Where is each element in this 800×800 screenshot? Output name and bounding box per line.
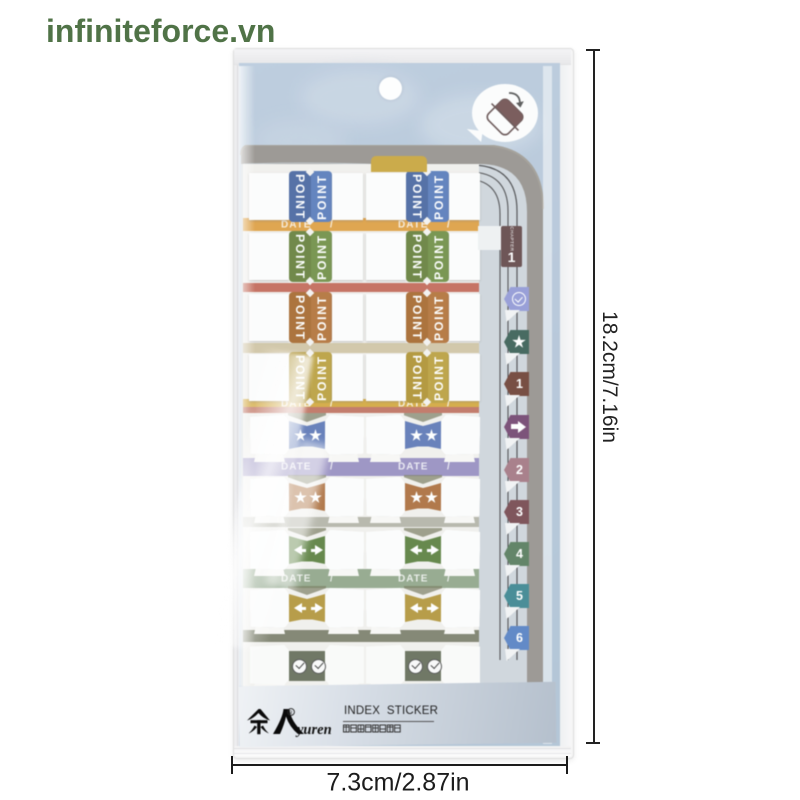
svg-text:yuren: yuren xyxy=(295,722,332,737)
svg-text:R: R xyxy=(289,710,293,716)
